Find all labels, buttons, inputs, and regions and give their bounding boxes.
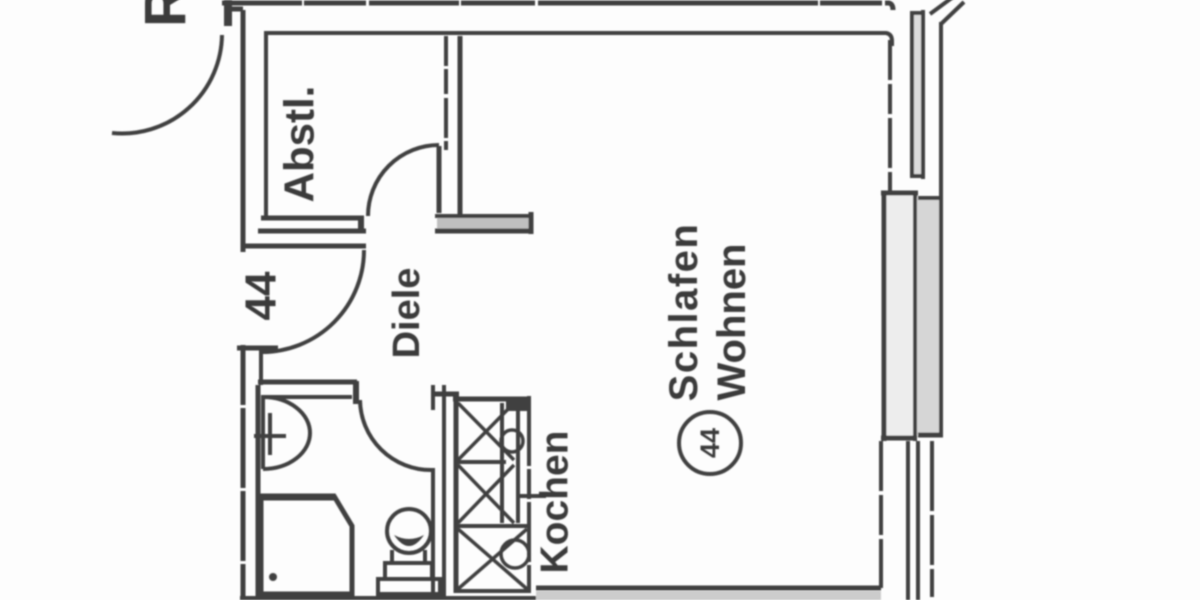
- svg-text:Kochen: Kochen: [534, 430, 577, 573]
- svg-text:44: 44: [237, 271, 286, 320]
- svg-text:Diele: Diele: [386, 268, 428, 359]
- svg-text:R: R: [134, 0, 199, 27]
- svg-text:Wohnen: Wohnen: [710, 243, 754, 400]
- svg-text:Abstl.: Abstl.: [276, 86, 323, 203]
- svg-text:44: 44: [695, 428, 725, 458]
- svg-text:Schlafen: Schlafen: [662, 223, 706, 402]
